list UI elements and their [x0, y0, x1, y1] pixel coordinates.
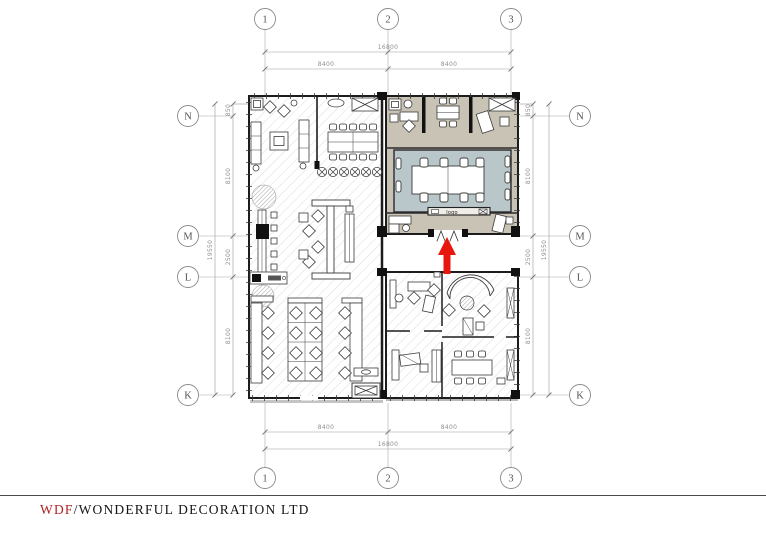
grid-bubble-right-n: N: [576, 112, 584, 123]
dim-right-seg-b: 8100: [525, 168, 532, 184]
logo-label: logo: [446, 210, 457, 216]
dim-bottom-total: 16800: [378, 441, 399, 448]
company-brand: WDF: [40, 502, 74, 517]
grid-bubble-right-m: M: [575, 232, 585, 243]
grid-bubble-left-k: K: [184, 391, 192, 402]
door-opening: [300, 396, 318, 401]
company-name: WONDERFUL DECORATION LTD: [79, 502, 310, 517]
grid-bubble-bottom-3: 3: [508, 474, 513, 485]
dim-right-total: 19550: [541, 240, 548, 261]
grid-bubbles: 1 2 3 1 2 3 N M L K N M L K: [178, 9, 591, 489]
title-divider-line: [0, 495, 766, 496]
grid-bubble-top-1: 1: [262, 15, 267, 26]
meeting-table: [328, 98, 378, 160]
floor-plan-sheet: 16800 8400 8400 8400 8400 16800 850 8100…: [0, 0, 766, 541]
title-block: WDF/WONDERFUL DECORATION LTD: [40, 502, 310, 518]
grid-bubble-bottom-2: 2: [385, 474, 390, 485]
grid-bubble-bottom-1: 1: [262, 474, 267, 485]
grid-bubble-left-n: N: [184, 112, 192, 123]
dim-right-seg-d: 8100: [525, 328, 532, 344]
dim-left-total: 19550: [207, 240, 214, 261]
dim-left-seg-c: 2500: [225, 249, 232, 265]
dim-top-total: 16800: [378, 44, 399, 51]
grid-bubble-right-k: K: [576, 391, 584, 402]
dim-left-seg-a: 850: [225, 104, 232, 116]
dim-left-seg-d: 8100: [225, 328, 232, 344]
dim-top-seg1: 8400: [318, 61, 334, 68]
grid-bubble-top-2: 2: [385, 15, 390, 26]
dim-right-seg-c: 2500: [525, 249, 532, 265]
dim-right-seg-a: 850: [525, 104, 532, 116]
plant: [252, 185, 276, 209]
floor-plan-drawing: 16800 8400 8400 8400 8400 16800 850 8100…: [0, 0, 766, 541]
grid-bubble-right-l: L: [577, 273, 583, 284]
dim-top-seg2: 8400: [441, 61, 457, 68]
dim-left-seg-b: 8100: [225, 168, 232, 184]
open-office: [251, 296, 362, 383]
dim-bottom-seg2: 8400: [441, 424, 457, 431]
grid-bubble-left-l: L: [185, 273, 191, 284]
grid-bubble-left-m: M: [183, 232, 193, 243]
dim-bottom-seg1: 8400: [318, 424, 334, 431]
entrance-arrow: [438, 237, 456, 274]
logo-wall: logo: [428, 208, 490, 216]
grid-bubble-top-3: 3: [508, 15, 513, 26]
